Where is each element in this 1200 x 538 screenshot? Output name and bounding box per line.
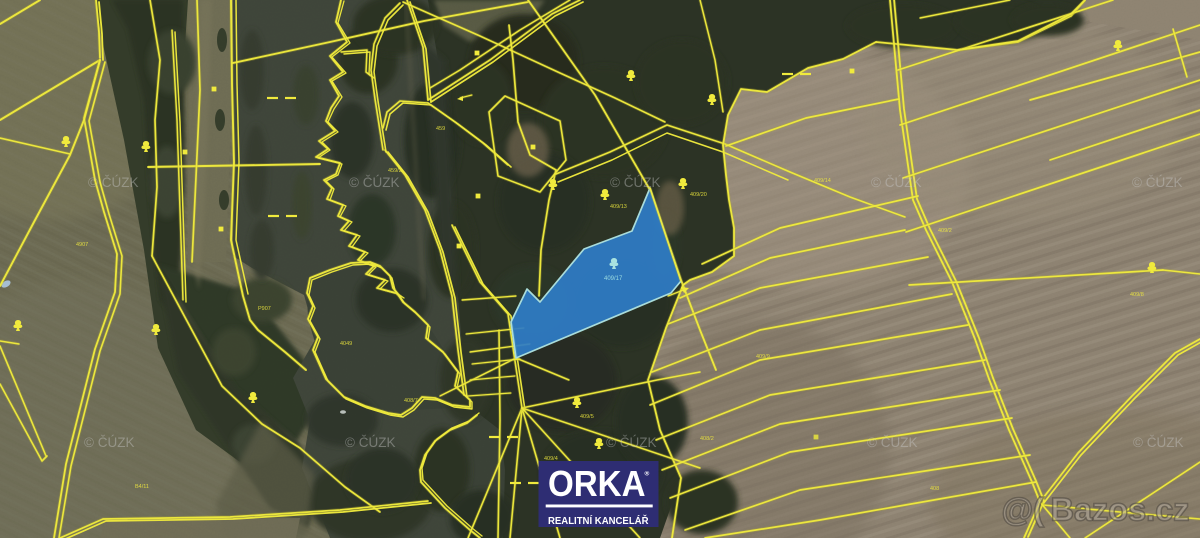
svg-text:P907: P907 <box>258 306 271 312</box>
svg-text:B4/11: B4/11 <box>135 484 149 490</box>
svg-text:409/8: 409/8 <box>1130 292 1144 298</box>
svg-text:408: 408 <box>930 486 939 492</box>
svg-text:408/2: 408/2 <box>700 436 714 442</box>
svg-text:© ČÚZK: © ČÚZK <box>610 175 660 190</box>
svg-text:4907: 4907 <box>76 242 88 248</box>
svg-text:REALITNÍ KANCELÁŘ: REALITNÍ KANCELÁŘ <box>548 514 649 527</box>
svg-text:© ČÚZK: © ČÚZK <box>606 435 656 450</box>
svg-text:@( Bazos.cz: @( Bazos.cz <box>1002 492 1190 528</box>
svg-text:409/20: 409/20 <box>690 192 707 198</box>
svg-text:409/5: 409/5 <box>580 414 594 420</box>
svg-text:459: 459 <box>436 126 445 132</box>
svg-text:408/7: 408/7 <box>404 398 418 404</box>
svg-text:ORKA: ORKA <box>548 463 646 504</box>
svg-text:459/2: 459/2 <box>388 168 402 174</box>
svg-text:409/17: 409/17 <box>604 276 623 282</box>
svg-text:© ČÚZK: © ČÚZK <box>84 435 134 450</box>
svg-text:409/14: 409/14 <box>814 178 831 184</box>
svg-text:4049: 4049 <box>340 341 352 347</box>
svg-text:© ČÚZK: © ČÚZK <box>349 175 399 190</box>
svg-text:© ČÚZK: © ČÚZK <box>871 175 921 190</box>
svg-text:© ČÚZK: © ČÚZK <box>345 435 395 450</box>
svg-text:© ČÚZK: © ČÚZK <box>867 435 917 450</box>
svg-text:409/2: 409/2 <box>938 228 952 234</box>
svg-text:© ČÚZK: © ČÚZK <box>1133 435 1183 450</box>
svg-text:© ČÚZK: © ČÚZK <box>88 175 138 190</box>
svg-text:®: ® <box>645 470 650 478</box>
svg-text:© ČÚZK: © ČÚZK <box>1132 175 1182 190</box>
svg-text:409/13: 409/13 <box>610 204 627 210</box>
svg-text:409/9: 409/9 <box>756 354 770 360</box>
